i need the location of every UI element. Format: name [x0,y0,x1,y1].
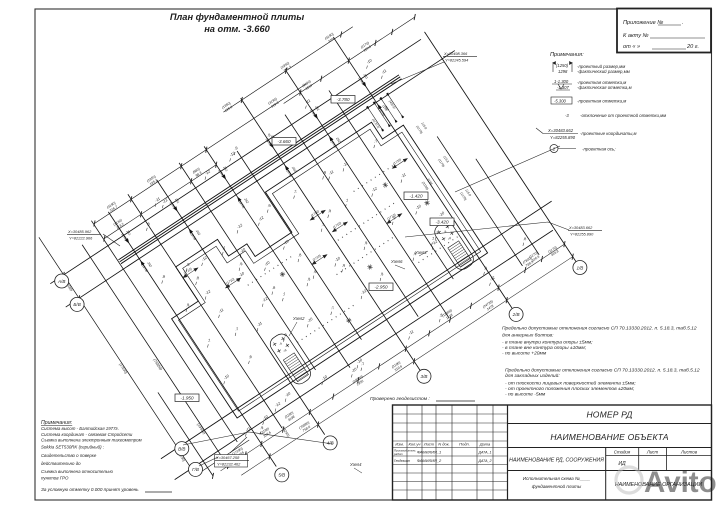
svg-text:пунктов ГРО: пунктов ГРО [41,476,69,481]
svg-text:на отм. -3.660: на отм. -3.660 [204,24,270,34]
svg-text:Y=82222.966: Y=82222.966 [69,236,93,241]
svg-text:- в плане вне контура опоры: - в плане вне контура опоры ±10мм; [502,345,587,351]
svg-text:ФАМИЛИЯ_2: ФАМИЛИЯ_2 [417,458,442,463]
svg-text:Подп.: Подп. [459,442,470,447]
svg-text:Г/В: Г/В [192,467,199,472]
svg-text:5/В: 5/В [278,473,285,478]
svg-text:- по высоте -5мм: - по высоте -5мм [505,392,546,398]
svg-text:Y=82245.594: Y=82245.594 [445,58,469,63]
svg-text:ДАТА_1: ДАТА_1 [477,451,491,455]
svg-text:-проектная ось;: -проектная ось; [582,147,616,152]
svg-text:Предельно допустимые отклонени: Предельно допустимые отклонения согласно… [502,326,697,332]
svg-text:НАИМЕНОВАНИЕ ОБЪЕКТА: НАИМЕНОВАНИЕ ОБЪЕКТА [550,432,669,442]
svg-text:Исполнительная схема №____: Исполнительная схема №____ [523,476,591,481]
svg-text:За условную отметку 0.000 прин: За условную отметку 0.000 принят уровень [41,487,139,492]
svg-text:X=30485.962: X=30485.962 [67,229,92,234]
svg-text:1/В: 1/В [576,265,583,270]
svg-text:Приложение №: Приложение № [623,20,663,26]
svg-text:-3.420: -3.420 [435,220,448,225]
svg-text:1298: 1298 [558,69,568,74]
svg-text:Система высот - Балтийская 197: Система высот - Балтийская 1977г. [41,426,119,431]
svg-text:1-1.300: 1-1.300 [554,79,569,84]
svg-text:-3.780: -3.780 [336,97,349,102]
svg-text:- в плане внутри контура опор: - в плане внутри контура опоры ±5мм; [502,340,593,346]
svg-text:Узел6: Узел6 [391,259,403,264]
svg-text:Стадия: Стадия [614,450,631,455]
svg-text:Геодезист: Геодезист [394,459,410,463]
svg-text:Лист: Лист [423,442,435,447]
svg-text:фундаментной плиты: фундаментной плиты [532,483,582,489]
svg-text:- от плоскости лицевых поверх: - от плоскости лицевых поверхностей элем… [505,380,636,387]
svg-text:для анкерных болтов:: для анкерных болтов: [502,333,554,339]
svg-text:-5.300: -5.300 [554,99,567,104]
svg-text:для закладных изделий:: для закладных изделий: [505,372,560,379]
svg-text:-фактическая отметка,м: -фактическая отметка,м [577,85,632,90]
svg-text:работ: работ [393,452,403,456]
svg-text:3/В: 3/В [421,374,428,379]
svg-text:Y=82255.890: Y=82255.890 [550,135,576,140]
svg-text:Дата: Дата [479,442,491,447]
svg-text:Съемка выполнена электронным т: Съемка выполнена электронным тахеометром [41,438,142,443]
svg-text:Изм.: Изм. [395,442,404,447]
svg-text:-3.660: -3.660 [277,139,290,144]
svg-text:Y=82255.890: Y=82255.890 [570,232,594,237]
svg-text:Y=82232.462: Y=82232.462 [217,462,241,467]
svg-text:-фактический размер,мм: -фактический размер,мм [577,69,630,74]
svg-text:Примечания:: Примечания: [550,52,584,58]
svg-text:Съемка выполнена относительно: Съемка выполнена относительно [41,469,113,474]
svg-text:-1.950: -1.950 [180,396,193,401]
svg-text:Sokkia SET530RK (серийный) :: Sokkia SET530RK (серийный) : [41,445,105,450]
svg-text:Узел4: Узел4 [350,462,362,467]
svg-text:-1.420: -1.420 [409,194,422,199]
svg-text:План фундаментной плиты: План фундаментной плиты [170,12,304,22]
svg-text:Предельно допустимые отклонени: Предельно допустимые отклонения согласно… [505,368,700,374]
svg-text:(1250): (1250) [556,63,569,68]
svg-text:X=30483.662: X=30483.662 [568,225,593,230]
svg-text:Система координат - связевая С: Система координат - связевая Стройсети [41,432,133,437]
svg-text:- от проектного положения пло: - от проектного положения плоских элемен… [505,386,635,392]
svg-text:- по высоте +20мм: - по высоте +20мм [502,351,547,357]
svg-text:X=30467.258: X=30467.258 [215,455,240,460]
svg-text:Листов: Листов [680,450,698,455]
svg-text:А/В: А/В [57,279,65,284]
svg-text:Кол.уч: Кол.уч [409,442,421,447]
svg-text:НОМЕР РД: НОМЕР РД [586,410,632,420]
svg-text:-отклонение от проектной отмет: -отклонение от проектной отметки,мм [580,113,666,118]
svg-text:от « »: от « » [623,44,640,50]
svg-text:.: . [682,20,684,26]
svg-text:-проектные координаты,м: -проектные координаты,м [580,131,637,136]
svg-text:К акту №: К акту № [623,33,649,39]
svg-text:ФАМИЛИЯ_1: ФАМИЛИЯ_1 [417,450,442,455]
svg-text:В/В: В/В [178,446,185,451]
svg-text:-проектная отметка,м: -проектная отметка,м [577,99,626,104]
svg-text:ДАТА_2: ДАТА_2 [477,459,491,463]
svg-text:2/В: 2/В [512,312,520,317]
svg-text:X=30483.662: X=30483.662 [547,128,574,133]
svg-text:N док.: N док. [438,442,449,447]
svg-text:-2.950: -2.950 [374,285,387,290]
svg-text:Свидетельство о поверке: Свидетельство о поверке [41,453,97,458]
svg-text:Б/В: Б/В [73,302,80,307]
svg-text:НАИМЕНОВАНИЕ РД, СООРУЖЕНИЯ: НАИМЕНОВАНИЕ РД, СООРУЖЕНИЯ [509,458,604,464]
svg-text:Лист: Лист [646,450,659,455]
svg-text:20 г.: 20 г. [686,44,699,50]
svg-text:Проверено геодезистом :: Проверено геодезистом : [370,396,430,402]
svg-text:X=30498.366: X=30498.366 [443,51,468,56]
svg-text:Avito: Avito [644,466,717,499]
svg-text:действительно до: действительно до [41,461,81,466]
svg-text:Узел2: Узел2 [293,316,305,321]
